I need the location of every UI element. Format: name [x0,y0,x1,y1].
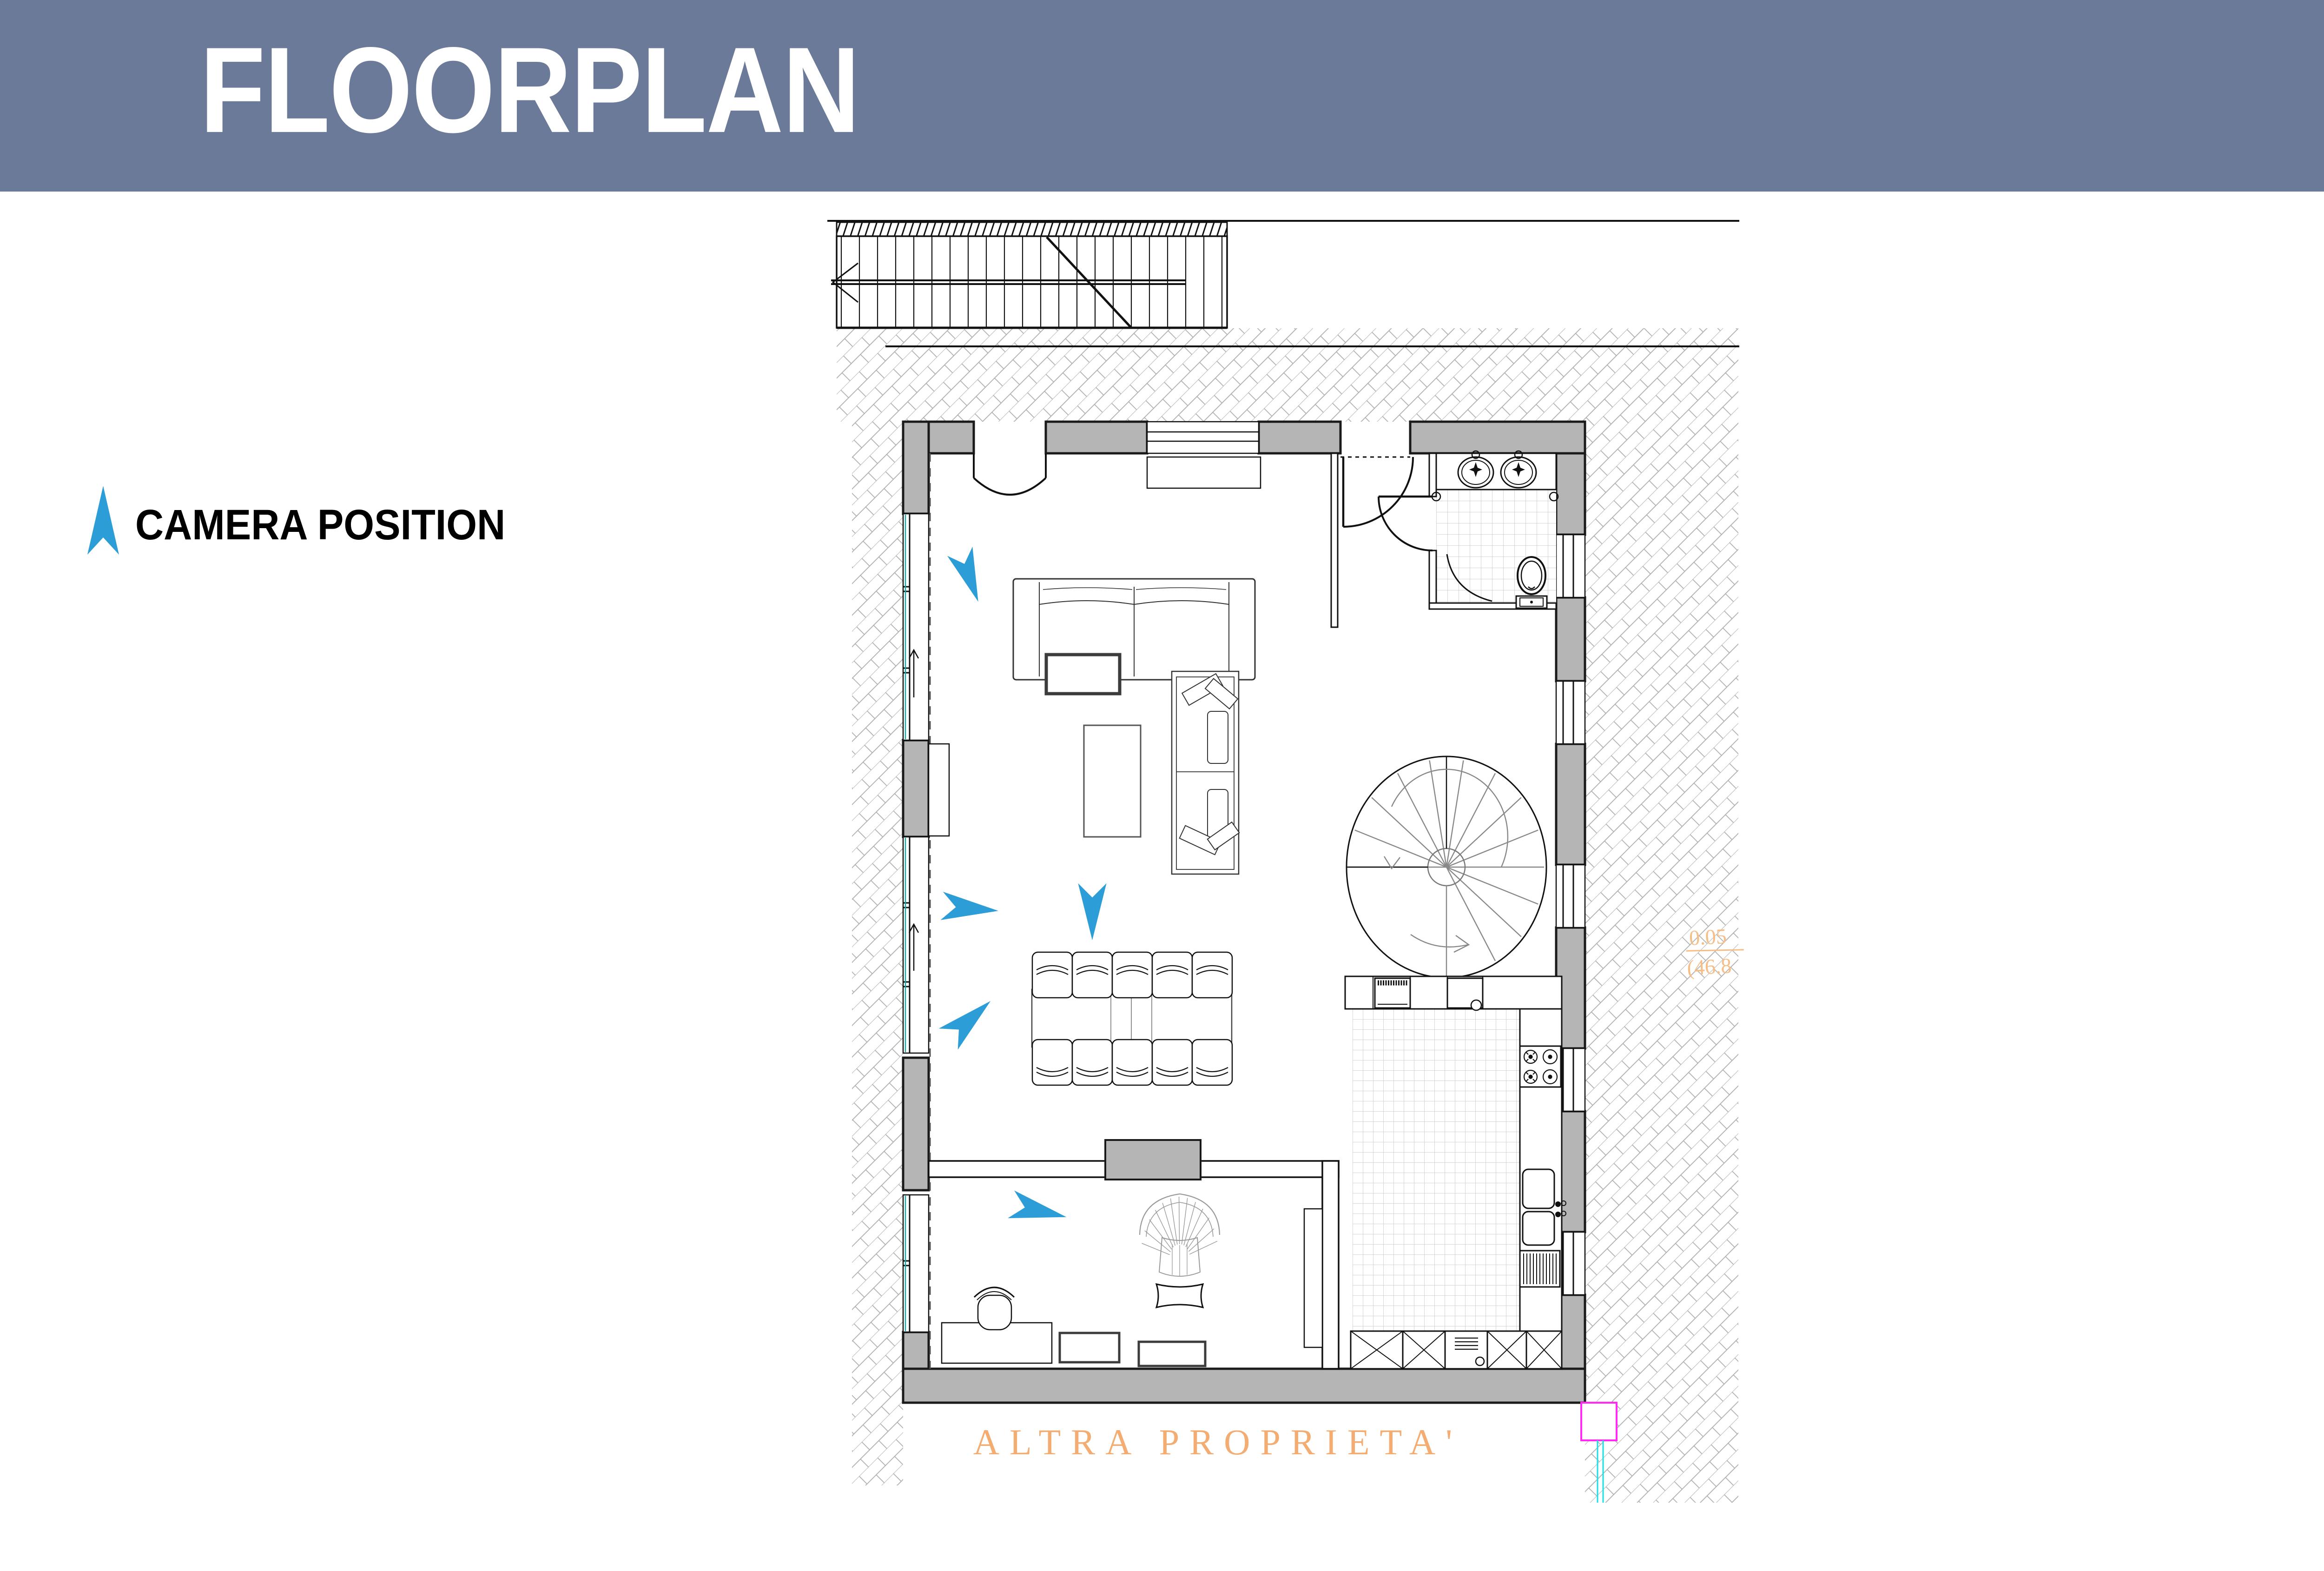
window-top [1147,422,1261,488]
floorplan-drawing: ALTRA PROPRIETA' 0.05 (46.8 [0,0,2324,1571]
dining-chair [1112,1040,1152,1085]
side-table [1084,725,1141,837]
spiral-staircase [1347,756,1546,978]
oven [1375,978,1410,1008]
kitchen-tiled-floor [1353,1009,1520,1331]
wall-cabinet [929,744,949,836]
dining-chair [1152,952,1192,998]
hob [1520,1046,1561,1087]
other-property-label: ALTRA PROPRIETA' [973,1422,1463,1462]
toilet [1516,557,1547,608]
armchair [1140,1194,1220,1277]
entry-door [1340,457,1413,527]
sideboard-1 [1060,1333,1119,1362]
dining-chair [1072,1040,1112,1085]
dishwasher [1445,1331,1487,1369]
dining-chair [1032,1040,1072,1085]
camera-arrow-icon [1078,883,1106,940]
sofa-right [1172,671,1239,874]
sideboard-2 [1139,1342,1205,1366]
windows-left [903,514,929,1332]
counter-appliance [1447,978,1483,1010]
kitchen [1345,976,1566,1369]
vanity-counter [1436,453,1556,490]
office-cabinet [1304,1209,1322,1347]
desk-chair [974,1287,1014,1330]
dining-chair [1192,952,1232,998]
camera-arrow-icon [940,892,999,925]
drainer [1520,1251,1560,1287]
dining-chair [1152,1040,1192,1085]
dining-chair [1112,952,1152,998]
bathroom [1379,451,1558,609]
office-right-wall [1322,1161,1339,1369]
dimension-top: 0.05 [1689,924,1727,950]
entry-partition-wall [1331,453,1338,627]
camera-arrow-icon [947,547,991,606]
straight-staircase [827,221,1739,346]
dining-chair [1192,1040,1232,1085]
pouf [1156,1284,1203,1307]
partition-pillar [1105,1140,1201,1180]
dining-chair [1072,952,1112,998]
window-sill-cabinet [1147,457,1261,488]
base-cabinet [1403,1331,1445,1369]
coffee-table [1046,655,1120,694]
bathroom-door [1379,497,1433,550]
camera-arrow-icon [939,990,1000,1049]
base-cabinet [1526,1331,1562,1369]
dining-chair [1032,952,1072,998]
base-cabinet [1487,1331,1526,1369]
survey-magenta-mark [1581,1403,1617,1440]
office [929,1140,1339,1369]
base-cabinet [1351,1331,1403,1369]
arched-opening [974,453,1046,495]
dimension-bottom: (46.8 [1686,954,1732,980]
floorplan-page: FLOORPLAN CAMERA POSITION [0,0,2324,1571]
camera-arrow-icon [1008,1190,1070,1231]
